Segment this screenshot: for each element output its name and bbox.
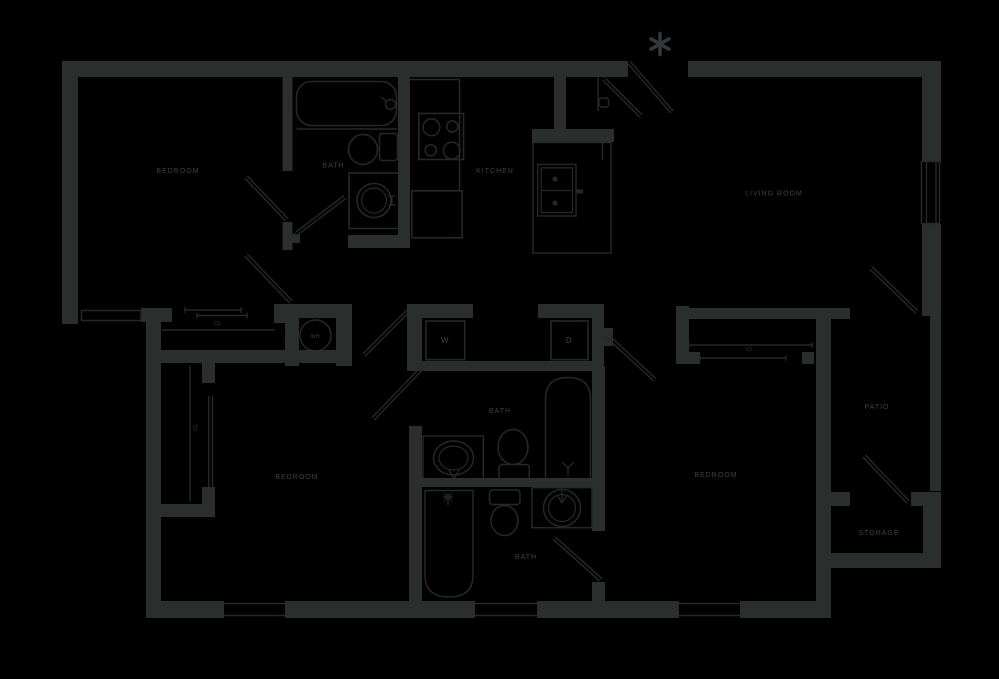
svg-text:WH: WH [311,334,320,340]
svg-text:BATH: BATH [489,408,511,415]
svg-text:D: D [566,336,572,345]
svg-text:BEDROOM: BEDROOM [275,474,318,481]
svg-text:BATH: BATH [322,163,344,170]
svg-text:BATH: BATH [515,554,537,561]
svg-text:W: W [441,336,449,345]
svg-text:BEDROOM: BEDROOM [156,168,199,175]
svg-text:CL: CL [214,321,222,327]
svg-text:CL: CL [746,347,754,353]
svg-text:LIVING ROOM: LIVING ROOM [745,191,803,198]
svg-text:STORAGE: STORAGE [858,530,899,537]
svg-text:PATIO: PATIO [865,404,890,411]
svg-text:CL: CL [193,423,199,431]
svg-text:BEDROOM: BEDROOM [694,472,737,479]
svg-text:KITCHEN: KITCHEN [476,168,514,175]
